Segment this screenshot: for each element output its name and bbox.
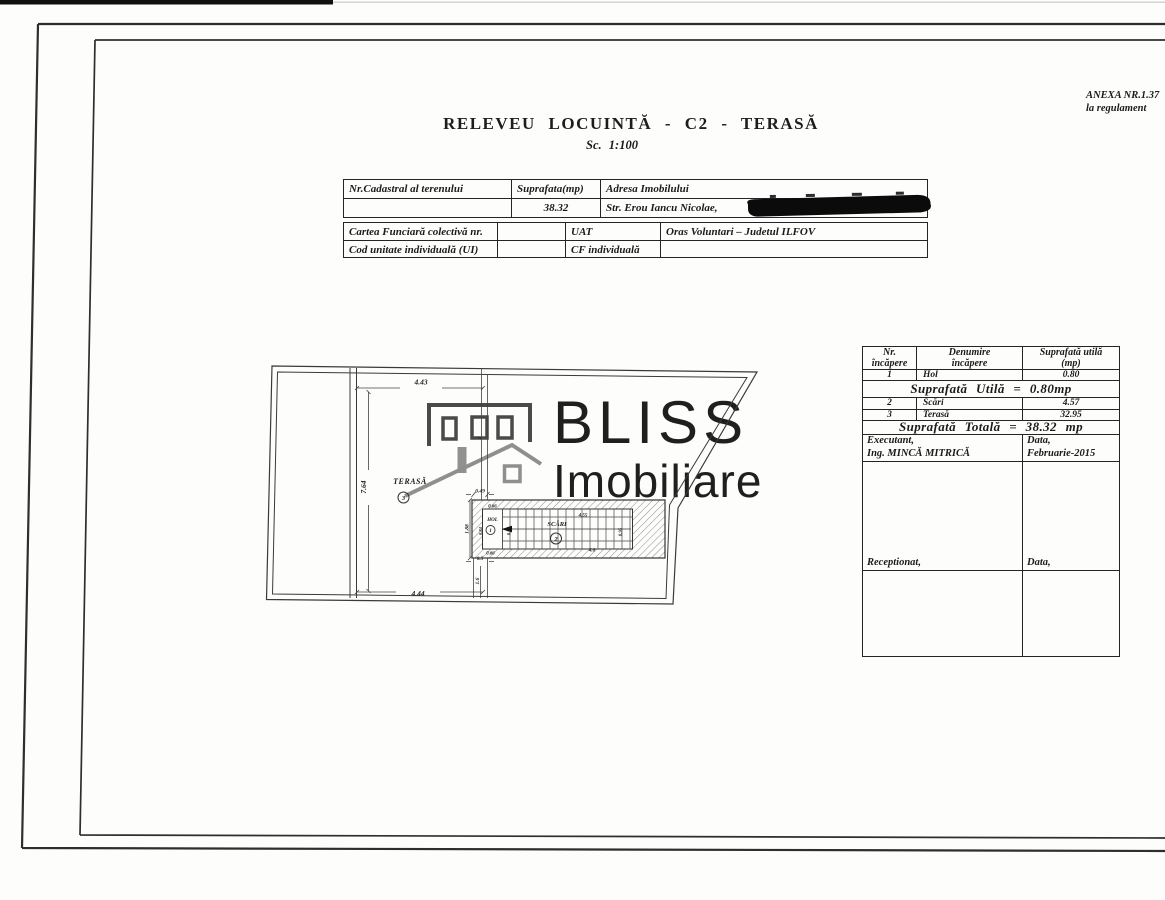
receptionat-block: Receptionat, Data, [863, 557, 1119, 656]
cod-unitate-value [498, 241, 566, 258]
scan-edge-artifact-light [333, 2, 1165, 4]
dim-stairs-width: 0.95 [619, 527, 624, 536]
dimension-lines [355, 368, 494, 598]
header-denumire-line1: Denumire [917, 348, 1022, 359]
executant-block: Executant, Ing. MINCĂ MITRICĂ Data, Febr… [863, 435, 1119, 557]
nr-cadastral-label: Nr.Cadastral al terenului [344, 180, 512, 199]
uat-label: UAT [566, 223, 661, 241]
header-nr: Nr. încăpere [863, 347, 917, 370]
executant-cell: Executant, Ing. MINCĂ MITRICĂ [863, 435, 1023, 557]
plan-inner-boundary [273, 372, 748, 599]
executant-text: Executant, Ing. MINCĂ MITRICĂ [863, 435, 1022, 462]
receptionat-label: Receptionat, [863, 557, 1022, 571]
scan-edge-artifact [0, 0, 333, 5]
dim-below-gap: 0.5 [477, 557, 484, 562]
header-suprafata-line2: (mp) [1023, 359, 1119, 370]
receptionat-data-cell: Data, [1023, 557, 1119, 656]
header-suprafata: Suprafată utilă (mp) [1023, 347, 1119, 370]
dim-bottom: 4.44 [410, 589, 424, 598]
executant-data-cell: Data, Februarie-2015 [1023, 435, 1119, 557]
header-denumire: Denumire încăpere [917, 347, 1023, 370]
interior-wall [350, 368, 357, 598]
adresa-value: Str. Erou Iancu Nicolae, [601, 199, 927, 217]
page-title: RELEVEU LOCUINTĂ - C2 - TERASĂ [371, 114, 891, 134]
executant-name: Ing. MINCĂ MITRICĂ [867, 448, 1018, 461]
cadastral-table: Nr.Cadastral al terenului Suprafata(mp) … [343, 179, 928, 218]
room-number-terasa: 3 [401, 495, 406, 502]
stair-block-walls [472, 500, 665, 558]
house-icon [405, 405, 541, 496]
dim-stairs-top: 4.55 [578, 514, 588, 519]
dim-stair-offset: 0.49 [475, 489, 485, 495]
header-nr-line1: Nr. [863, 348, 916, 359]
room-label-hol: HOL [486, 518, 498, 523]
anexa-line2: la regulament [1086, 103, 1165, 116]
room-number-scari: 2 [553, 536, 558, 543]
watermark-line1: BLISS [553, 389, 748, 456]
watermark: BLISS Imobiliare [405, 389, 762, 507]
executant-data-text: Data, Februarie-2015 [1023, 435, 1119, 462]
cartea-funciara-label: Cartea Funciară colectivă nr. [344, 223, 498, 241]
anexa-line1: ANEXA NR.1.37 [1086, 90, 1165, 103]
header-denumire-line2: încăpere [917, 359, 1022, 370]
stair-well [483, 509, 633, 549]
rooms-table: Nr. încăpere Denumire încăpere Suprafată… [862, 346, 1120, 657]
cf-individuala-label: CF individuală [566, 241, 661, 258]
room-number-hol: 1 [489, 528, 492, 534]
row2-nr: 2 [863, 398, 917, 410]
executant-label: Executant, [867, 435, 1018, 448]
dim-below-height: 1.6 [475, 577, 481, 584]
dim-hol-depth: 0.95 [508, 526, 513, 535]
row2-name: Scări [917, 398, 1023, 410]
table-row: 2 Scări 4.57 [863, 398, 1119, 410]
row2-area: 4.57 [1023, 398, 1119, 410]
room-number-circle-terasa [398, 492, 409, 503]
suprafata-value: 38.32 [512, 199, 601, 217]
data-value: Februarie-2015 [1027, 448, 1115, 461]
dim-gap: 2 [478, 436, 483, 440]
table-row: 1 Hol 0.80 [863, 370, 1119, 380]
stair-direction-arrow [502, 526, 513, 533]
header-nr-line2: încăpere [863, 359, 916, 370]
room-label-terasa: TERASĂ [393, 476, 427, 486]
dim-top: 4.43 [413, 378, 427, 387]
uat-value: Oras Voluntari – Judetul ILFOV [661, 223, 927, 241]
anexa-note: ANEXA NR.1.37 la regulament [1086, 90, 1165, 115]
dim-hol-left: 0.84 [478, 526, 483, 535]
cartea-funciara-value [498, 223, 566, 241]
dim-hol-top: 0.66 [488, 505, 497, 510]
receptionat-data-label: Data, [1023, 557, 1119, 571]
total-row: Suprafată Totală = 38.32 mp [863, 420, 1119, 435]
cf-table: Cartea Funciară colectivă nr. UAT Oras V… [343, 222, 928, 258]
stair-rails [503, 517, 633, 541]
rooms-table-header: Nr. încăpere Denumire încăpere Suprafată… [863, 347, 1119, 370]
stair-treads [510, 509, 630, 549]
receptionat-cell: Receptionat, [863, 557, 1023, 656]
adresa-label: Adresa Imobilului [601, 180, 927, 199]
room-number-circle-hol [486, 526, 495, 535]
floor-plan: 4.43 7.64 4.44 2 0.49 1.88 0.5 1.6 0.66 … [267, 366, 758, 604]
scale-note: Sc. 1:100 [372, 138, 852, 153]
watermark-line2: Imobiliare [553, 455, 762, 507]
cod-unitate-label: Cod unitate individuală (UI) [344, 241, 498, 258]
dim-hol-bottom: 0.66 [486, 552, 495, 557]
header-suprafata-line1: Suprafată utilă [1023, 348, 1119, 359]
dim-stairs-bottom: 4.6 [588, 549, 596, 554]
scanned-document-page: ANEXA NR.1.37 la regulament RELEVEU LOCU… [0, 0, 1165, 900]
data-label: Data, [1027, 435, 1115, 448]
dim-stair-height: 1.88 [465, 524, 471, 534]
subtotal-row: Suprafată Utilă = 0.80mp [863, 380, 1119, 398]
room-number-circle-scari [551, 533, 562, 544]
suprafata-label: Suprafata(mp) [512, 180, 601, 199]
dim-left: 7.64 [359, 480, 368, 493]
cf-individuala-value [661, 241, 927, 258]
plan-outer-boundary [267, 366, 758, 604]
room-label-scari: SCĂRI [547, 520, 567, 528]
nr-cadastral-value [344, 199, 512, 217]
